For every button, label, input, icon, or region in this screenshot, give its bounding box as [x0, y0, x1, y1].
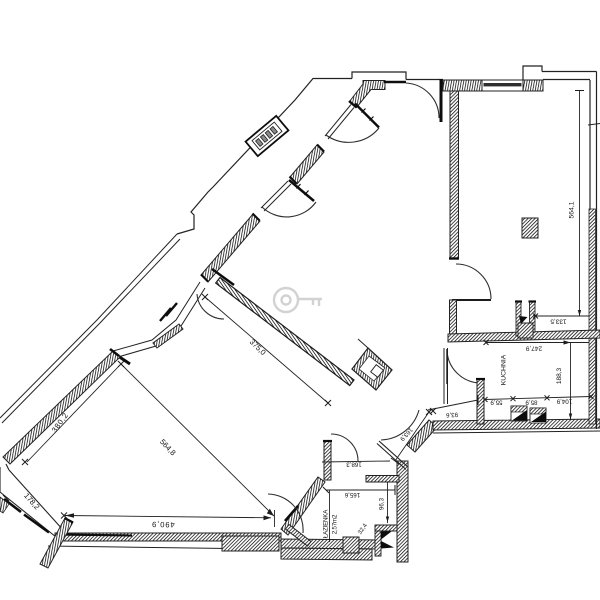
svg-text:55,9: 55,9 — [490, 399, 503, 406]
svg-text:564,1: 564,1 — [569, 201, 576, 218]
svg-text:2,57m2: 2,57m2 — [332, 514, 339, 534]
svg-text:490,9: 490,9 — [151, 520, 175, 529]
svg-text:ŁAZIENKA: ŁAZIENKA — [323, 509, 330, 538]
svg-text:133,5: 133,5 — [550, 318, 567, 325]
svg-text:188,3: 188,3 — [556, 367, 563, 384]
svg-text:104,9: 104,9 — [556, 398, 572, 405]
svg-text:168,3: 168,3 — [346, 461, 362, 468]
svg-text:96,3: 96,3 — [379, 497, 386, 510]
svg-text:KUCHNIA: KUCHNIA — [501, 354, 508, 385]
svg-text:93,6: 93,6 — [445, 411, 458, 419]
svg-text:85,9: 85,9 — [525, 399, 538, 406]
svg-text:165,6: 165,6 — [344, 491, 360, 498]
svg-text:247,9: 247,9 — [525, 345, 542, 352]
